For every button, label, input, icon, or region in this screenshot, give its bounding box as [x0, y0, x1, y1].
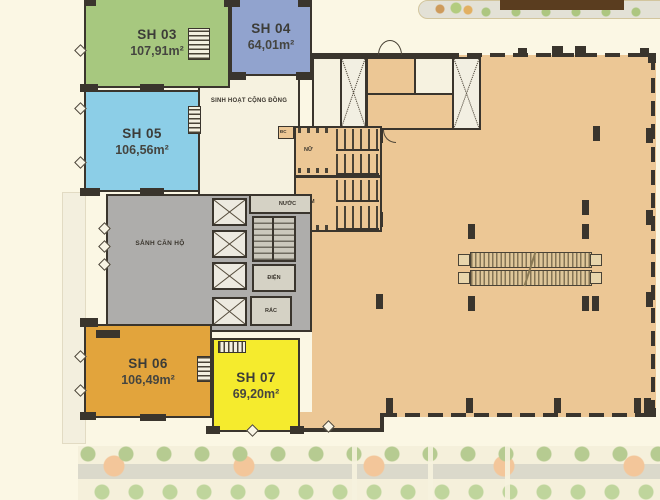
column — [582, 296, 589, 311]
toilet-stalls-icon — [336, 129, 379, 151]
column — [644, 398, 651, 413]
wall-niche — [96, 330, 120, 338]
wall-segment — [80, 318, 98, 327]
unit-sh05: SH 05 106,56m² — [84, 90, 200, 192]
garden-divider — [505, 446, 510, 500]
escalator-landing — [590, 272, 602, 284]
retail-bottom-wall — [298, 428, 384, 432]
column — [646, 210, 653, 225]
garden-divider — [352, 446, 357, 500]
duct-label: ĐC — [280, 129, 287, 134]
landscape-bottom — [78, 446, 660, 500]
column — [646, 128, 653, 143]
electrical-room: ĐIỆN — [252, 264, 296, 292]
column — [575, 46, 586, 57]
stairs-icon — [252, 216, 296, 262]
restroom-divider-wall — [294, 175, 382, 178]
trash-room: RÁC — [250, 296, 292, 326]
apartment-lobby-label: SẢNH CĂN HỘ — [112, 240, 208, 247]
wall-step — [380, 413, 384, 432]
wall-segment — [84, 0, 96, 6]
service-lift-icon — [340, 57, 367, 128]
elevator-icon — [212, 262, 247, 290]
unit-sh07-area: 69,20m² — [233, 387, 280, 401]
column — [468, 296, 475, 311]
electrical-room-label: ĐIỆN — [267, 275, 280, 281]
retail-corridor — [312, 57, 342, 128]
service-room — [414, 57, 454, 95]
wall-segment — [140, 188, 164, 195]
unit-sh06-area: 106,49m² — [121, 373, 175, 387]
elevator-icon — [212, 230, 247, 258]
toilet-stalls-icon — [336, 180, 379, 202]
escalator-landing — [458, 254, 470, 266]
sinks-icon — [298, 168, 332, 173]
floor-plan: SINH HOẠT CỘNG ĐỒNG NỮ NAM ĐC SẢNH CĂN H… — [0, 0, 660, 500]
wall-segment — [80, 188, 100, 196]
shaft-icon — [218, 341, 246, 353]
unit-sh05-area: 106,56m² — [115, 143, 169, 157]
entrance-canopy — [500, 0, 624, 10]
column — [554, 398, 561, 413]
wall-segment — [228, 72, 246, 80]
wall-segment — [206, 426, 220, 434]
wall-segment — [140, 84, 164, 92]
elevator-icon — [212, 198, 247, 226]
door-arc-icon — [390, 40, 402, 55]
shaft-icon — [188, 106, 201, 134]
sinks-icon — [298, 128, 332, 133]
planter-icon — [432, 2, 474, 15]
column — [376, 294, 383, 309]
unit-sh05-name: SH 05 — [122, 126, 162, 141]
garden-divider — [428, 446, 433, 500]
storage-room — [366, 57, 416, 95]
wall-segment — [290, 426, 304, 434]
elevator-icon — [212, 297, 247, 326]
column — [468, 224, 475, 239]
column — [582, 200, 589, 215]
unit-sh03-name: SH 03 — [137, 27, 177, 42]
stair-rail — [272, 218, 274, 260]
door-arc-icon — [378, 40, 390, 55]
column — [593, 126, 600, 141]
escalator-icon — [470, 270, 592, 286]
unit-sh07-name: SH 07 — [236, 370, 276, 385]
unit-sh04: SH 04 64,01m² — [230, 0, 312, 76]
wall-segment — [296, 72, 312, 80]
toilet-stalls-icon — [336, 154, 379, 175]
community-room-label: SINH HOẠT CỘNG ĐỒNG — [211, 98, 287, 104]
retail-right-curtainwall — [651, 55, 655, 415]
water-room-label: NƯỚC — [279, 201, 296, 207]
column — [634, 398, 641, 413]
shaft-icon — [197, 356, 211, 382]
column — [552, 46, 563, 57]
unit-sh04-area: 64,01m² — [248, 38, 295, 52]
column — [582, 224, 589, 239]
column — [592, 296, 599, 311]
column — [646, 292, 653, 307]
column — [518, 48, 527, 57]
wc-female-label: NỮ — [304, 147, 313, 153]
toilet-stalls-icon — [336, 206, 379, 230]
wall-segment — [80, 412, 96, 420]
wall-segment — [140, 414, 166, 421]
fire-stair-icon — [452, 57, 481, 130]
retail-top-curtainwall — [444, 53, 656, 57]
escalator-landing — [590, 254, 602, 266]
storage-room — [366, 93, 454, 130]
escalator-landing — [458, 272, 470, 284]
column — [466, 398, 473, 413]
column — [640, 48, 649, 57]
column — [386, 398, 393, 413]
wall-segment — [80, 84, 98, 92]
shaft-icon — [188, 28, 210, 60]
wall-corner — [648, 53, 656, 63]
unit-sh06: SH 06 106,49m² — [84, 324, 212, 418]
retail-bottom-curtainwall — [382, 413, 656, 417]
unit-sh04-name: SH 04 — [251, 21, 291, 36]
unit-sh06-name: SH 06 — [128, 356, 168, 371]
trash-room-label: RÁC — [265, 308, 277, 314]
unit-sh03-area: 107,91m² — [130, 44, 184, 58]
wall-segment — [224, 0, 240, 7]
water-room: NƯỚC — [249, 194, 312, 214]
wall-segment — [298, 0, 312, 7]
